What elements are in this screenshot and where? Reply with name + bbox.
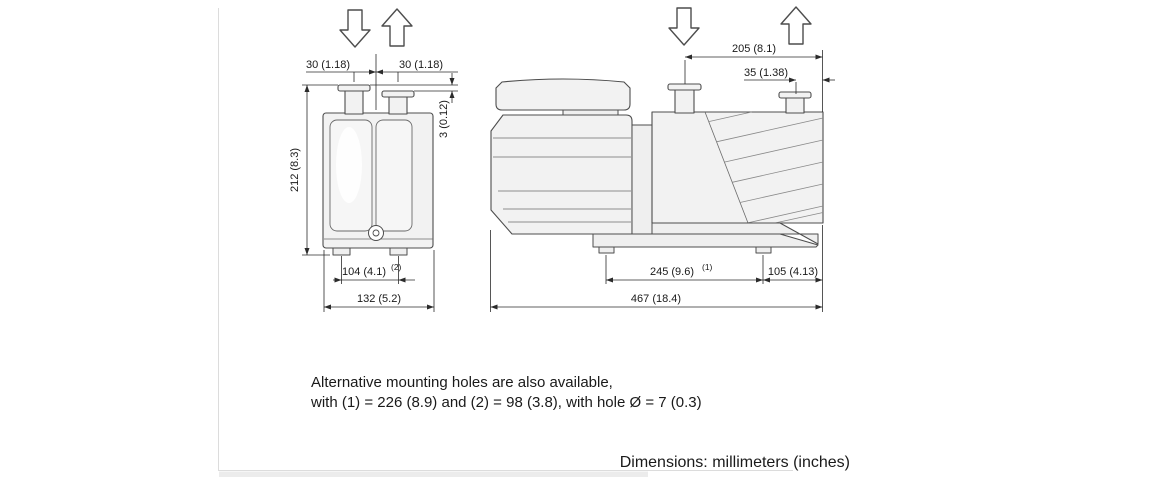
motor-handle	[496, 79, 630, 110]
dim-side-foot-spacing: 245 (9.6)	[650, 266, 694, 278]
dim-overall-length: 467 (18.4)	[631, 293, 681, 305]
side-exhaust-port-flange	[779, 92, 811, 98]
side-right-foot	[756, 247, 771, 253]
inlet-arrow-down-icon	[340, 10, 370, 47]
note-line-1: Alternative mounting holes are also avai…	[311, 374, 613, 391]
front-view	[323, 9, 433, 255]
motor-pump-bracket	[632, 125, 652, 234]
dimensions-unit-note: Dimensions: millimeters (inches)	[620, 454, 850, 471]
motor-body	[491, 115, 632, 234]
dim-port-span: 205 (8.1)	[732, 43, 776, 55]
front-left-port-neck	[345, 91, 363, 114]
note-line-2: with (1) = 226 (8.9) and (2) = 98 (3.8),…	[310, 394, 702, 411]
technical-drawing-canvas: 30 (1.18) 30 (1.18) 3 (0.12) 212 (8.3) 1…	[0, 0, 1160, 480]
dim-exhaust-offset: 35 (1.38)	[744, 67, 788, 79]
exhaust-arrow-up-icon	[382, 9, 412, 46]
side-inlet-port-neck	[675, 90, 694, 113]
exhaust-arrow-up-icon	[781, 7, 811, 44]
annotations: Alternative mounting holes are also avai…	[310, 374, 850, 471]
dim-side-foot-spacing-sup: (1)	[702, 262, 713, 272]
dim-foot-to-end: 105 (4.13)	[768, 266, 818, 278]
dim-inlet-offset-right: 30 (1.18)	[399, 59, 443, 71]
dim-front-width: 132 (5.2)	[357, 293, 401, 305]
front-right-port-flange	[382, 91, 414, 97]
dim-front-height: 212 (8.3)	[289, 148, 301, 192]
oil-knob	[369, 226, 384, 241]
front-right-foot	[390, 248, 407, 255]
dim-port-height-diff: 3 (0.12)	[438, 100, 450, 138]
front-left-port-flange	[338, 85, 370, 91]
dim-front-foot-spacing-sup: (2)	[391, 262, 402, 272]
base-plate	[593, 234, 818, 247]
side-left-foot	[599, 247, 614, 253]
inlet-arrow-down-icon	[669, 8, 699, 45]
front-right-port-neck	[389, 97, 407, 114]
side-exhaust-port-neck	[786, 98, 804, 113]
side-inlet-port-flange	[668, 84, 701, 90]
page-bottom-shadow	[219, 472, 648, 478]
dim-inlet-offset-left: 30 (1.18)	[306, 59, 350, 71]
dim-front-foot-spacing: 104 (4.1)	[342, 266, 386, 278]
front-right-door-panel	[376, 120, 412, 231]
panel-highlight	[336, 127, 362, 203]
front-left-foot	[333, 248, 350, 255]
pump-dimension-drawing-page: 30 (1.18) 30 (1.18) 3 (0.12) 212 (8.3) 1…	[0, 0, 1160, 480]
